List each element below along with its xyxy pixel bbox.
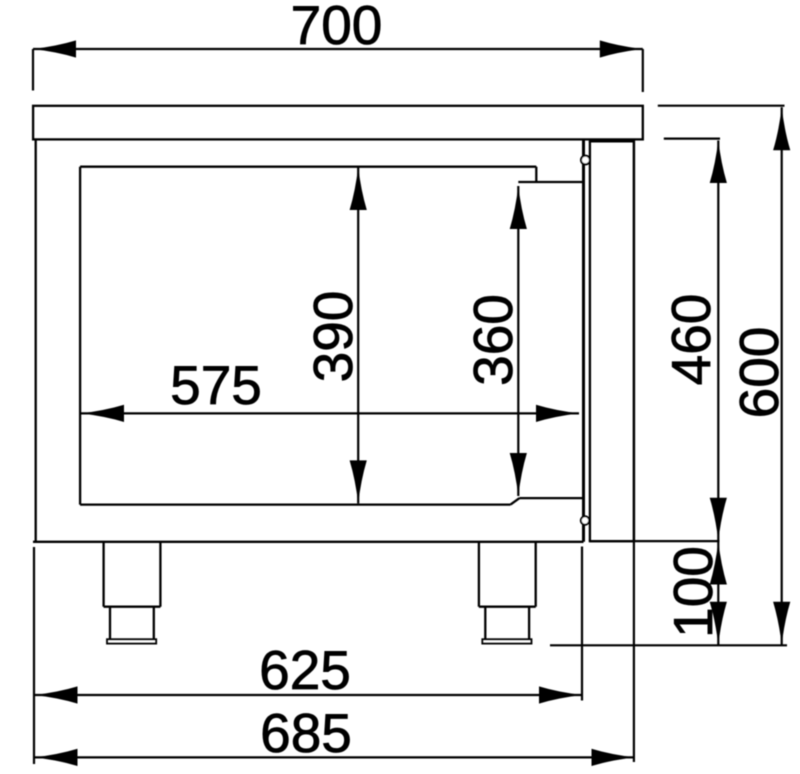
svg-text:685: 685 xyxy=(260,702,352,764)
svg-text:700: 700 xyxy=(291,0,383,56)
svg-text:360: 360 xyxy=(462,294,524,386)
svg-text:460: 460 xyxy=(660,294,722,386)
svg-text:625: 625 xyxy=(259,639,351,701)
svg-text:575: 575 xyxy=(170,354,262,416)
svg-text:600: 600 xyxy=(728,327,790,419)
svg-text:390: 390 xyxy=(302,291,364,383)
svg-text:100: 100 xyxy=(662,546,724,638)
